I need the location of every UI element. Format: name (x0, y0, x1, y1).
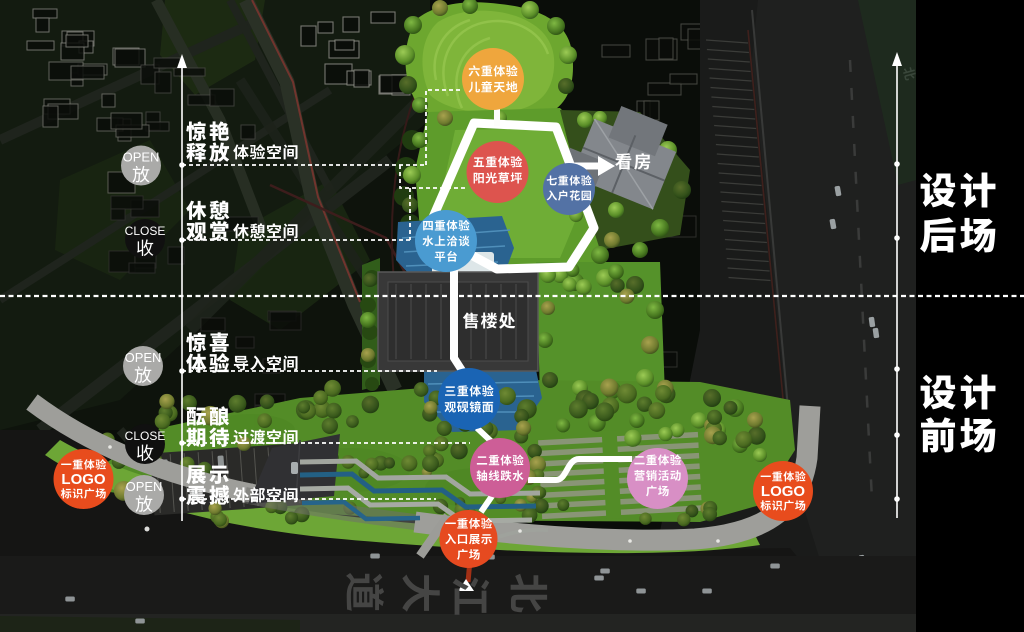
svg-text:OPEN: OPEN (126, 479, 163, 494)
svg-text:CLOSE: CLOSE (125, 224, 166, 238)
svg-text:OPEN: OPEN (123, 150, 160, 165)
svg-text:OPEN: OPEN (125, 350, 162, 365)
svg-text:LOGO: LOGO (61, 471, 105, 488)
svg-text:LOGO: LOGO (761, 483, 805, 500)
svg-text:CLOSE: CLOSE (125, 429, 166, 443)
